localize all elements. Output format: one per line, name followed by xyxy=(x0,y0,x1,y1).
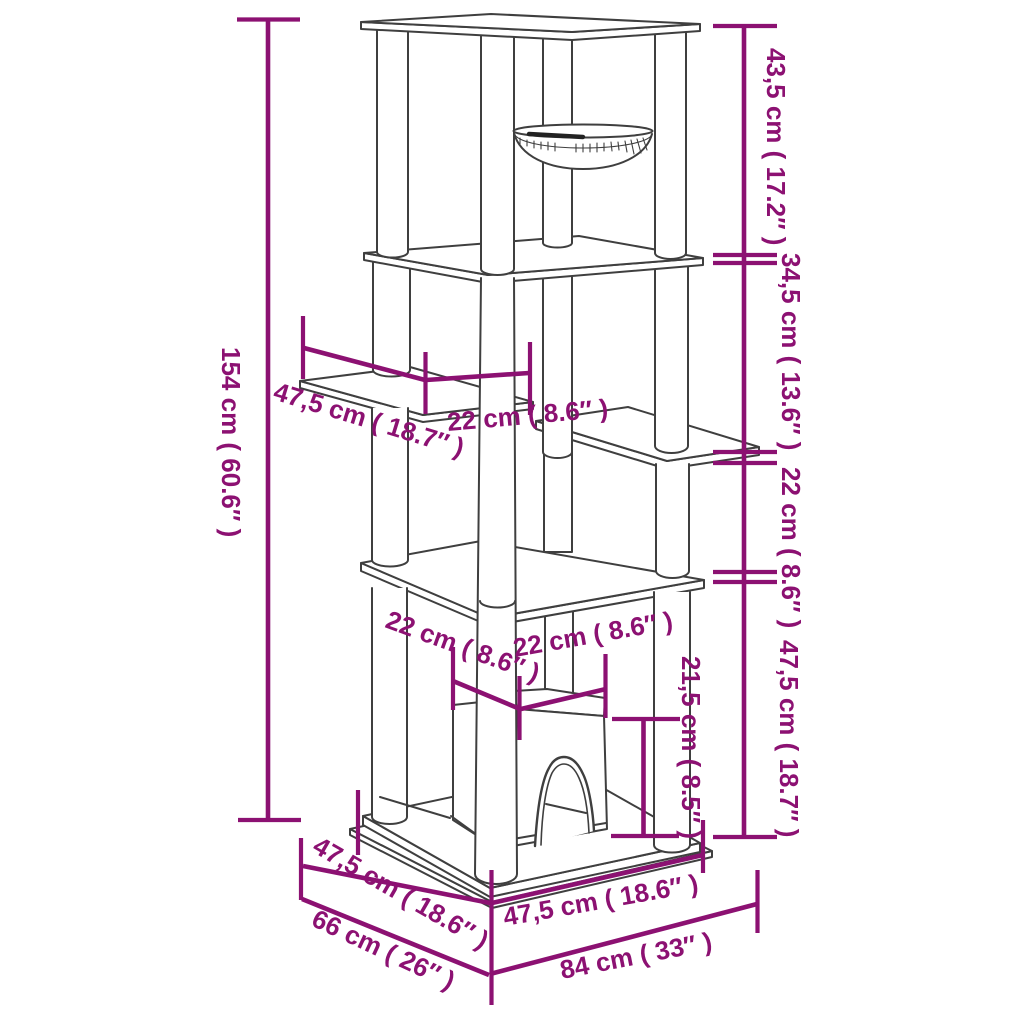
svg-text:43,5 cm ( 17.2″ ): 43,5 cm ( 17.2″ ) xyxy=(761,48,791,245)
svg-text:154 cm ( 60.6″ ): 154 cm ( 60.6″ ) xyxy=(216,347,246,537)
svg-text:22 cm ( 8.6″ ): 22 cm ( 8.6″ ) xyxy=(776,467,806,628)
svg-text:21,5 cm ( 8.5″ ): 21,5 cm ( 8.5″ ) xyxy=(676,656,706,839)
svg-text:34,5 cm ( 13.6″ ): 34,5 cm ( 13.6″ ) xyxy=(776,253,806,450)
svg-text:47,5 cm ( 18.7″ ): 47,5 cm ( 18.7″ ) xyxy=(774,640,804,837)
